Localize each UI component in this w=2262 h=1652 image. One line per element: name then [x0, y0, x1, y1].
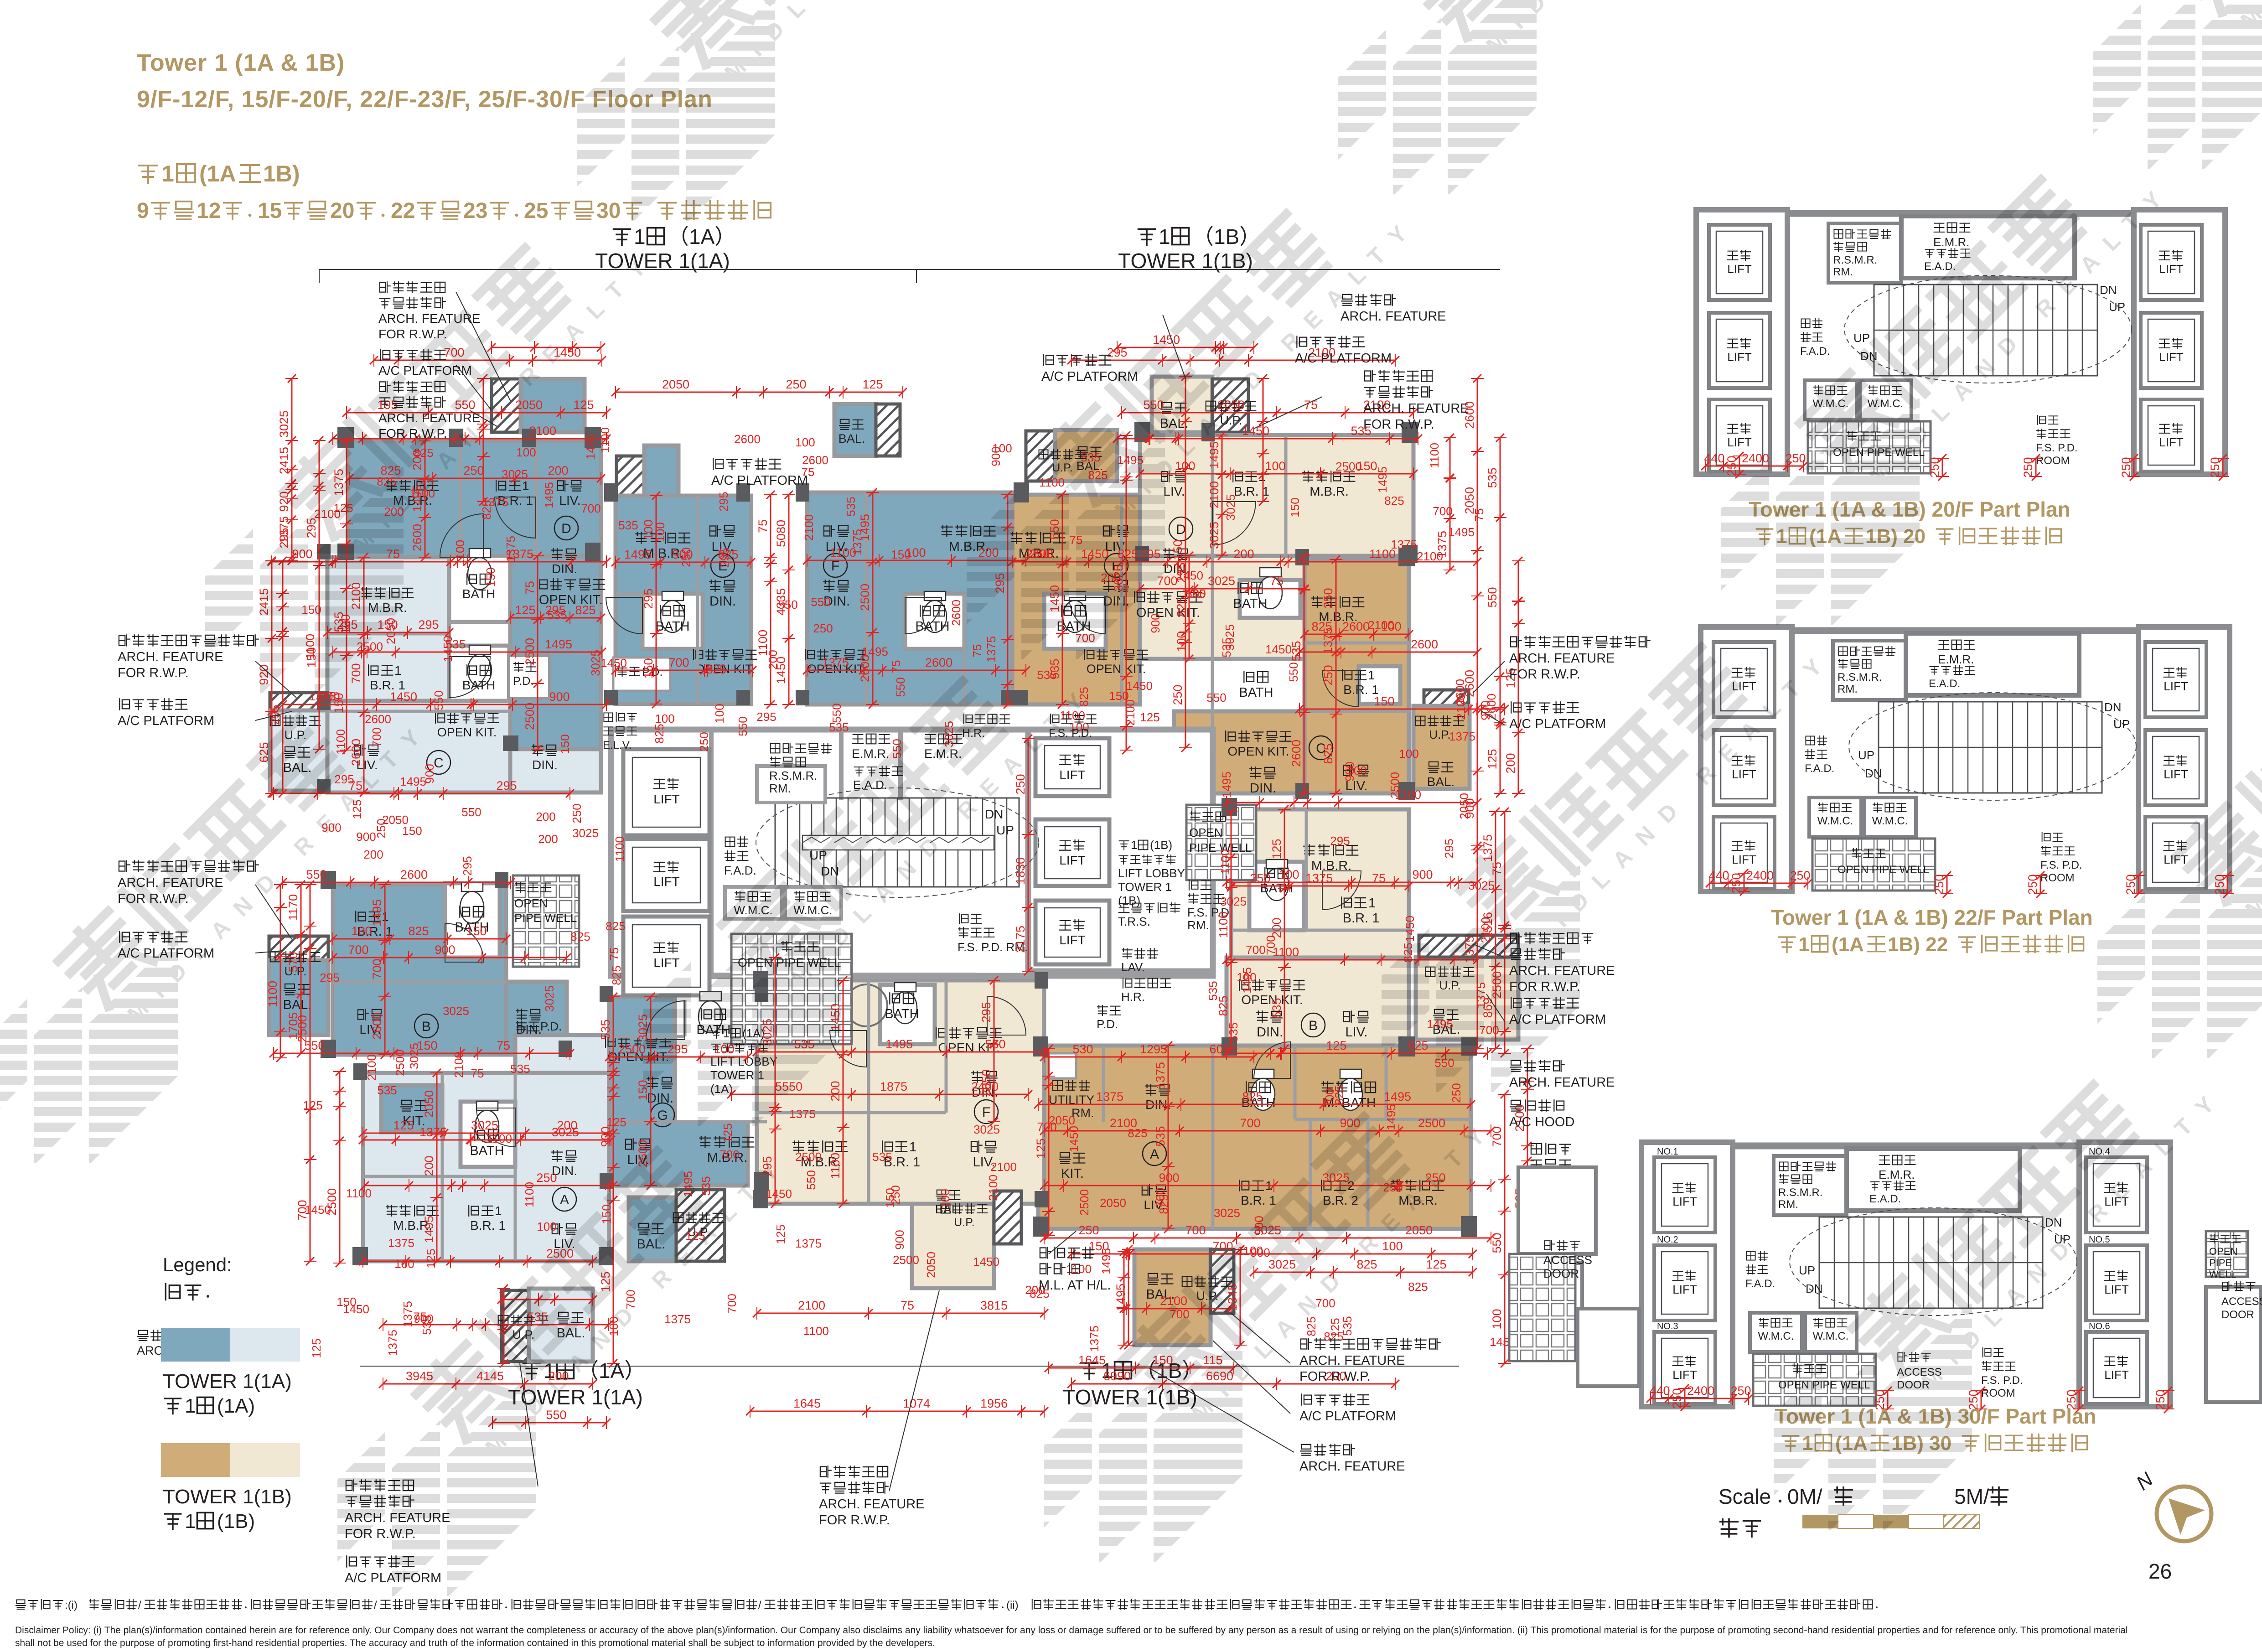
svg-text:125: 125 — [573, 398, 594, 412]
svg-text:550: 550 — [546, 1408, 566, 1422]
svg-text:0M/: 0M/ — [1787, 1485, 1822, 1508]
svg-text:15: 15 — [258, 199, 282, 223]
svg-text:1375: 1375 — [984, 636, 998, 663]
svg-text:825: 825 — [575, 603, 595, 617]
svg-text:2400: 2400 — [1742, 451, 1769, 465]
svg-text:125: 125 — [1326, 1039, 1346, 1052]
svg-text:R.S.M.R.: R.S.M.R. — [1833, 254, 1877, 266]
svg-text:ROOM: ROOM — [1981, 1387, 2015, 1399]
svg-text:700: 700 — [1185, 1223, 1206, 1237]
svg-text:LIFT: LIFT — [1732, 853, 1756, 866]
svg-text:NO.2: NO.2 — [1657, 1235, 1678, 1245]
svg-text:2600: 2600 — [858, 655, 872, 682]
svg-text:535: 535 — [844, 497, 858, 516]
svg-text:1956: 1956 — [980, 1397, 1008, 1410]
svg-text:250: 250 — [1729, 873, 1743, 893]
svg-text:100: 100 — [655, 712, 674, 725]
svg-text:100: 100 — [938, 1189, 952, 1208]
svg-text:1375: 1375 — [1154, 1062, 1167, 1089]
svg-text:100: 100 — [992, 441, 1012, 455]
svg-text:295: 295 — [979, 1002, 993, 1022]
svg-text:900: 900 — [356, 830, 376, 844]
svg-text:550: 550 — [985, 1037, 1005, 1051]
svg-text:DN: DN — [1806, 1282, 1823, 1295]
svg-text:1450: 1450 — [973, 1255, 999, 1269]
svg-text:LIFT: LIFT — [1672, 1195, 1697, 1208]
svg-text:D: D — [561, 521, 571, 536]
svg-text:1495: 1495 — [1384, 1104, 1398, 1130]
svg-text:1450: 1450 — [1067, 1126, 1081, 1152]
svg-text:UP: UP — [2113, 717, 2130, 731]
svg-text:3025: 3025 — [973, 1123, 1000, 1136]
svg-text:FOR R.W.P.: FOR R.W.P. — [118, 666, 189, 680]
svg-text:2500: 2500 — [618, 1042, 646, 1056]
svg-text:100: 100 — [905, 546, 926, 559]
svg-text:E.A.D.: E.A.D. — [1929, 678, 1960, 690]
svg-text:150: 150 — [1288, 497, 1302, 517]
svg-text:/: / — [138, 1599, 141, 1611]
svg-text:3025: 3025 — [1268, 1258, 1296, 1271]
svg-text:W.M.C.: W.M.C. — [1872, 815, 1908, 827]
svg-text:3025: 3025 — [407, 1043, 421, 1069]
svg-text:100: 100 — [642, 519, 655, 540]
svg-text:100: 100 — [537, 1220, 556, 1233]
svg-text:2500: 2500 — [893, 1253, 919, 1267]
svg-text:KIT.: KIT. — [1061, 1166, 1084, 1181]
svg-text:1495: 1495 — [1384, 1090, 1411, 1103]
svg-text:BATH: BATH — [885, 1007, 919, 1021]
svg-text:1495: 1495 — [1448, 525, 1475, 539]
svg-text:825: 825 — [652, 724, 666, 743]
svg-text:250: 250 — [2153, 1389, 2167, 1410]
svg-text:295: 295 — [496, 779, 517, 792]
svg-text:2100: 2100 — [529, 424, 556, 438]
svg-text:150: 150 — [402, 824, 422, 838]
svg-text:825: 825 — [1384, 494, 1404, 508]
svg-text:TOWER 1: TOWER 1 — [1118, 880, 1172, 894]
svg-text:2600: 2600 — [949, 600, 963, 626]
svg-text:ARCH. FEATURE: ARCH. FEATURE — [1341, 309, 1446, 324]
svg-text:NO.6: NO.6 — [2089, 1321, 2110, 1331]
svg-text:2100: 2100 — [798, 1299, 825, 1312]
svg-text:A/C PLATFORM: A/C PLATFORM — [1299, 1409, 1396, 1424]
svg-text:125: 125 — [862, 378, 883, 391]
svg-text:295: 295 — [1330, 834, 1350, 848]
svg-text:200: 200 — [538, 832, 558, 846]
svg-text:3025: 3025 — [572, 826, 599, 840]
svg-text:2050: 2050 — [924, 1252, 938, 1278]
svg-text:250: 250 — [570, 803, 584, 823]
svg-text:2600: 2600 — [365, 712, 391, 726]
svg-text:2600: 2600 — [1289, 740, 1303, 767]
svg-text:75: 75 — [471, 1067, 484, 1080]
svg-text:OPEN: OPEN — [2209, 1246, 2237, 1257]
svg-text:26: 26 — [2148, 1559, 2172, 1583]
svg-text:1100: 1100 — [1218, 849, 1232, 875]
svg-text:BAL.: BAL. — [283, 998, 312, 1012]
svg-text:75: 75 — [523, 581, 537, 595]
svg-text:P.D.: P.D. — [513, 675, 533, 688]
svg-text:1875: 1875 — [880, 1080, 907, 1093]
svg-text:1830: 1830 — [1014, 857, 1027, 885]
svg-text:200: 200 — [548, 464, 568, 477]
svg-text:D: D — [1176, 522, 1186, 537]
svg-text:250: 250 — [786, 378, 806, 391]
svg-text:100: 100 — [713, 704, 726, 723]
svg-text:535: 535 — [1154, 1126, 1167, 1146]
svg-text:75: 75 — [889, 660, 903, 673]
svg-text:1375: 1375 — [386, 1330, 399, 1356]
svg-text:FOR R.W.P.: FOR R.W.P. — [1363, 417, 1434, 432]
svg-text:2100: 2100 — [1123, 699, 1137, 726]
svg-text:825: 825 — [706, 663, 726, 676]
svg-text:A: A — [560, 1192, 569, 1207]
svg-text:LIFT: LIFT — [1727, 435, 1752, 449]
svg-text:LIV.: LIV. — [559, 493, 580, 508]
svg-text:F.S. P.D.: F.S. P.D. — [2036, 442, 2078, 454]
svg-text:1: 1 — [1368, 668, 1375, 682]
svg-text:23: 23 — [463, 199, 487, 223]
svg-text:250: 250 — [1171, 684, 1185, 705]
svg-text:100: 100 — [394, 1257, 414, 1271]
svg-text:LIFT: LIFT — [2159, 435, 2184, 449]
svg-text:2500: 2500 — [858, 584, 872, 611]
svg-text:BAL.: BAL. — [839, 432, 865, 445]
svg-text:LIFT LOBBY: LIFT LOBBY — [1118, 866, 1185, 880]
svg-text:3025: 3025 — [1214, 1206, 1240, 1220]
svg-text:2600: 2600 — [1411, 637, 1438, 651]
svg-text:1100: 1100 — [613, 836, 626, 862]
svg-text:125: 125 — [310, 1338, 323, 1358]
svg-text:1450: 1450 — [390, 690, 417, 704]
svg-text:200: 200 — [1270, 917, 1284, 938]
svg-text:1100: 1100 — [1216, 911, 1230, 938]
svg-text:700: 700 — [1246, 943, 1265, 957]
svg-text:250: 250 — [1790, 869, 1810, 882]
svg-text:2100: 2100 — [1417, 549, 1443, 563]
svg-text:100: 100 — [1399, 747, 1418, 761]
svg-text:5080: 5080 — [774, 520, 788, 547]
svg-text:P.D.: P.D. — [1097, 1017, 1118, 1031]
svg-text:150: 150 — [466, 924, 487, 938]
svg-text:1495: 1495 — [545, 637, 572, 651]
svg-text:150: 150 — [883, 1188, 897, 1207]
svg-text:250: 250 — [2119, 457, 2133, 477]
svg-text:LIFT: LIFT — [653, 792, 680, 806]
svg-text:295: 295 — [756, 710, 776, 724]
svg-text:LIFT: LIFT — [1059, 768, 1086, 782]
svg-text:20: 20 — [330, 199, 354, 223]
svg-text:1375: 1375 — [664, 1312, 691, 1326]
svg-text:2100: 2100 — [802, 514, 816, 541]
svg-text:535: 535 — [872, 1150, 892, 1164]
svg-text:BATH: BATH — [462, 587, 496, 601]
svg-text:1495: 1495 — [1220, 772, 1233, 798]
svg-text:LIFT: LIFT — [2104, 1368, 2129, 1382]
svg-text:PIPE: PIPE — [2209, 1257, 2232, 1269]
svg-text:1375: 1375 — [388, 1236, 414, 1250]
svg-text:250: 250 — [1725, 456, 1739, 476]
svg-text:900: 900 — [1149, 613, 1162, 633]
svg-text:250: 250 — [1250, 871, 1270, 885]
svg-text:900: 900 — [1343, 761, 1356, 781]
svg-text:2175: 2175 — [1014, 926, 1027, 953]
svg-text:1375: 1375 — [1305, 871, 1333, 885]
svg-text:75: 75 — [970, 644, 984, 658]
svg-text:125: 125 — [721, 1123, 735, 1143]
svg-text:75: 75 — [1270, 574, 1284, 588]
svg-text:250: 250 — [697, 732, 711, 751]
svg-text:ARCH. FEATURE: ARCH. FEATURE — [118, 650, 223, 664]
svg-text:825: 825 — [1408, 1280, 1428, 1294]
svg-text:250: 250 — [1670, 1388, 1684, 1409]
svg-text:3025: 3025 — [471, 1119, 498, 1132]
svg-text:125: 125 — [1270, 839, 1284, 859]
svg-text:200: 200 — [422, 1155, 436, 1176]
svg-text:250: 250 — [2026, 874, 2039, 895]
svg-text:900: 900 — [423, 764, 436, 783]
svg-text:250: 250 — [1730, 1384, 1751, 1398]
svg-text:(1A: (1A — [1832, 933, 1864, 956]
svg-text:DIN.: DIN. — [532, 758, 558, 772]
svg-text:550: 550 — [1287, 662, 1300, 682]
svg-text:2100: 2100 — [1454, 694, 1468, 720]
svg-text:9: 9 — [137, 199, 149, 223]
svg-text:shall not be used for the purp: shall not be used for the purpose of pro… — [15, 1638, 935, 1648]
svg-text:2100: 2100 — [365, 1054, 378, 1081]
svg-text:E.M.R.: E.M.R. — [1879, 1168, 1915, 1181]
svg-text:1375: 1375 — [822, 656, 849, 669]
svg-text:700: 700 — [581, 502, 600, 515]
svg-text:ACCESS: ACCESS — [2221, 1295, 2262, 1308]
svg-text:2400: 2400 — [1687, 1384, 1714, 1398]
svg-text:295: 295 — [1175, 562, 1188, 583]
svg-text:75: 75 — [607, 948, 621, 961]
svg-text:2500: 2500 — [523, 703, 537, 730]
svg-text:RM.: RM. — [1778, 1198, 1798, 1211]
svg-text:UP: UP — [1853, 331, 1870, 345]
svg-text:LIFT: LIFT — [1727, 262, 1752, 276]
svg-text:1495: 1495 — [1099, 1248, 1113, 1274]
svg-text:825: 825 — [1332, 1085, 1346, 1105]
svg-text:2050: 2050 — [979, 1069, 993, 1097]
svg-text:1375: 1375 — [1449, 730, 1475, 743]
svg-text:1495: 1495 — [422, 1216, 436, 1243]
svg-text:2600: 2600 — [410, 524, 424, 551]
svg-text:1100: 1100 — [803, 1324, 829, 1338]
svg-text:Tower 1 (1A & 1B) 22/F Part Pl: Tower 1 (1A & 1B) 22/F Part Plan — [1771, 906, 2093, 929]
svg-text:75: 75 — [1372, 871, 1386, 885]
svg-text:295: 295 — [320, 971, 339, 984]
svg-text:250: 250 — [1932, 874, 1946, 895]
svg-text:W.M.C.: W.M.C. — [1758, 1330, 1794, 1342]
svg-text:H.R.: H.R. — [1121, 990, 1145, 1004]
svg-text:LIV.: LIV. — [1163, 484, 1185, 498]
svg-text:ARCH. FEATURE: ARCH. FEATURE — [1363, 401, 1469, 416]
svg-text:200: 200 — [363, 848, 383, 861]
svg-text:ARCH. FEATURE: ARCH. FEATURE — [819, 1497, 924, 1512]
svg-text:OPEN KIT.: OPEN KIT. — [1087, 662, 1146, 676]
svg-text:BATH: BATH — [470, 1144, 504, 1158]
svg-text:700: 700 — [348, 943, 368, 957]
svg-text:150: 150 — [1109, 689, 1128, 703]
svg-text:900: 900 — [672, 548, 693, 561]
svg-text:200: 200 — [557, 1119, 577, 1132]
svg-text:DIN.: DIN. — [552, 562, 577, 576]
svg-text:150: 150 — [600, 1204, 613, 1224]
svg-text:DN: DN — [1865, 766, 1882, 780]
svg-text:ARCH. FEATURE: ARCH. FEATURE — [1299, 1353, 1405, 1368]
svg-text:2500: 2500 — [393, 1050, 407, 1076]
svg-text:125: 125 — [515, 603, 535, 617]
svg-text:1100: 1100 — [453, 540, 467, 565]
svg-text:125: 125 — [424, 1248, 438, 1268]
svg-text:OPEN: OPEN — [514, 896, 548, 910]
svg-text:R.S.M.R.: R.S.M.R. — [1838, 671, 1882, 684]
svg-text:3025: 3025 — [1207, 522, 1221, 549]
svg-text:2600: 2600 — [802, 453, 828, 467]
svg-text:250: 250 — [463, 464, 484, 477]
svg-text:6990: 6990 — [1103, 1369, 1131, 1383]
svg-text:825: 825 — [610, 965, 623, 985]
svg-text:900: 900 — [549, 690, 569, 704]
svg-text:535: 535 — [1486, 467, 1499, 488]
svg-text:2050: 2050 — [662, 378, 689, 391]
svg-text:75: 75 — [756, 519, 770, 533]
svg-text:250: 250 — [1449, 1083, 1463, 1103]
svg-text:2050: 2050 — [1457, 793, 1471, 819]
svg-text:B.R. 1: B.R. 1 — [1343, 683, 1379, 697]
svg-text:825: 825 — [1128, 1126, 1147, 1140]
svg-text:U.P.: U.P. — [954, 1216, 974, 1229]
svg-text:1705: 1705 — [286, 1012, 300, 1040]
svg-text:ROOM: ROOM — [2040, 872, 2075, 884]
svg-text:PIPE WELL: PIPE WELL — [514, 911, 577, 925]
svg-text:(ii): (ii) — [1006, 1599, 1019, 1611]
svg-text:700: 700 — [668, 656, 689, 669]
svg-text:2050: 2050 — [1405, 1223, 1433, 1237]
svg-text:RM.: RM. — [1833, 266, 1853, 278]
svg-text:LIFT: LIFT — [2159, 262, 2184, 276]
svg-text:2600: 2600 — [1485, 694, 1498, 720]
svg-text:2415: 2415 — [277, 447, 291, 474]
svg-text:150: 150 — [484, 567, 497, 587]
svg-text:295: 295 — [418, 618, 439, 632]
svg-text:295: 295 — [545, 603, 565, 617]
svg-text:DIN.: DIN. — [709, 594, 736, 609]
svg-text:TOWER 1(1B): TOWER 1(1B) — [163, 1486, 292, 1508]
svg-text:550: 550 — [461, 805, 481, 819]
svg-text:ARCH. FEATURE: ARCH. FEATURE — [1299, 1459, 1405, 1474]
svg-text:700: 700 — [370, 727, 383, 747]
svg-text:825: 825 — [408, 924, 429, 938]
svg-text:B.R. 1: B.R. 1 — [470, 1218, 506, 1233]
svg-text:ACCESS: ACCESS — [1543, 1253, 1592, 1267]
svg-text:125: 125 — [1140, 710, 1159, 724]
svg-text:R.S.M.R.: R.S.M.R. — [1778, 1186, 1822, 1199]
svg-text:1375: 1375 — [504, 536, 518, 562]
svg-text:ROOM: ROOM — [2036, 455, 2070, 467]
svg-text:DOOR: DOOR — [1543, 1267, 1579, 1280]
svg-text:550: 550 — [830, 703, 844, 723]
svg-text:BATH: BATH — [1239, 685, 1273, 700]
svg-text:(1B): (1B) — [1150, 838, 1172, 852]
svg-text:LIFT: LIFT — [2164, 767, 2188, 781]
svg-text:1100: 1100 — [830, 546, 856, 559]
svg-text:200: 200 — [1504, 753, 1517, 773]
svg-text:550: 550 — [1486, 587, 1499, 607]
svg-text:E.A.D.: E.A.D. — [1869, 1193, 1901, 1205]
svg-text:1: 1 — [1131, 838, 1137, 852]
svg-text:WELL: WELL — [2209, 1269, 2236, 1280]
svg-text:RM.: RM. — [769, 782, 791, 795]
svg-text:E.M.R.: E.M.R. — [1938, 653, 1974, 666]
svg-text:2100: 2100 — [986, 1175, 1000, 1201]
svg-text:825: 825 — [1321, 743, 1335, 764]
svg-text:（1A）: （1A） — [668, 225, 735, 249]
svg-text:LIFT: LIFT — [1059, 853, 1086, 867]
svg-text:700: 700 — [370, 958, 384, 979]
svg-text:R.S.M.R.: R.S.M.R. — [769, 769, 817, 782]
svg-text:550: 550 — [432, 690, 445, 710]
svg-text:NO.1: NO.1 — [1657, 1147, 1678, 1157]
svg-text:295: 295 — [717, 492, 730, 511]
svg-text:535: 535 — [1206, 981, 1220, 1000]
svg-text:LIFT: LIFT — [1059, 933, 1086, 947]
svg-text:100: 100 — [795, 435, 815, 449]
svg-text:125: 125 — [303, 1098, 322, 1112]
svg-text:535: 535 — [1220, 637, 1233, 657]
svg-text:100: 100 — [1237, 970, 1256, 984]
svg-text:BATH: BATH — [1233, 596, 1267, 611]
svg-text:530: 530 — [1072, 1042, 1093, 1056]
svg-text:1: 1 — [161, 161, 174, 186]
svg-text:5M/: 5M/ — [1954, 1485, 1989, 1508]
svg-text:1100: 1100 — [523, 1182, 536, 1207]
svg-text:125: 125 — [1034, 1138, 1048, 1159]
svg-text:1100: 1100 — [1428, 443, 1441, 468]
svg-text:440: 440 — [1649, 1384, 1670, 1398]
svg-text:FOR R.W.P.: FOR R.W.P. — [1299, 1369, 1371, 1384]
svg-text:570: 570 — [286, 952, 300, 972]
svg-text:1: 1 — [1798, 933, 1809, 956]
svg-text:1375: 1375 — [789, 1107, 816, 1121]
svg-text:1100: 1100 — [346, 1186, 372, 1200]
svg-text:E.L.V.: E.L.V. — [603, 739, 631, 751]
svg-text:825: 825 — [570, 930, 590, 943]
svg-text:1495: 1495 — [542, 482, 556, 508]
svg-text:200: 200 — [1233, 547, 1254, 561]
svg-text:535: 535 — [599, 1019, 612, 1040]
svg-text:825: 825 — [480, 500, 493, 519]
svg-text:2600: 2600 — [1342, 620, 1370, 633]
svg-text:1375: 1375 — [401, 1301, 414, 1327]
svg-text:250: 250 — [2208, 457, 2222, 477]
svg-text:295: 295 — [1442, 839, 1456, 858]
svg-text:825: 825 — [1242, 1090, 1263, 1103]
svg-text:1: 1 — [185, 1395, 196, 1417]
svg-text:Legend:: Legend: — [163, 1254, 232, 1275]
svg-text:BAL.: BAL. — [1427, 775, 1455, 789]
svg-text:100: 100 — [351, 924, 372, 938]
svg-text:535: 535 — [1270, 998, 1284, 1018]
svg-text:125: 125 — [393, 1119, 414, 1132]
svg-text:LIFT: LIFT — [1672, 1283, 1697, 1296]
svg-text:1074: 1074 — [903, 1397, 930, 1410]
svg-text:A: A — [1150, 1147, 1159, 1162]
svg-text:2500: 2500 — [523, 638, 537, 665]
svg-text:150: 150 — [1374, 694, 1394, 708]
